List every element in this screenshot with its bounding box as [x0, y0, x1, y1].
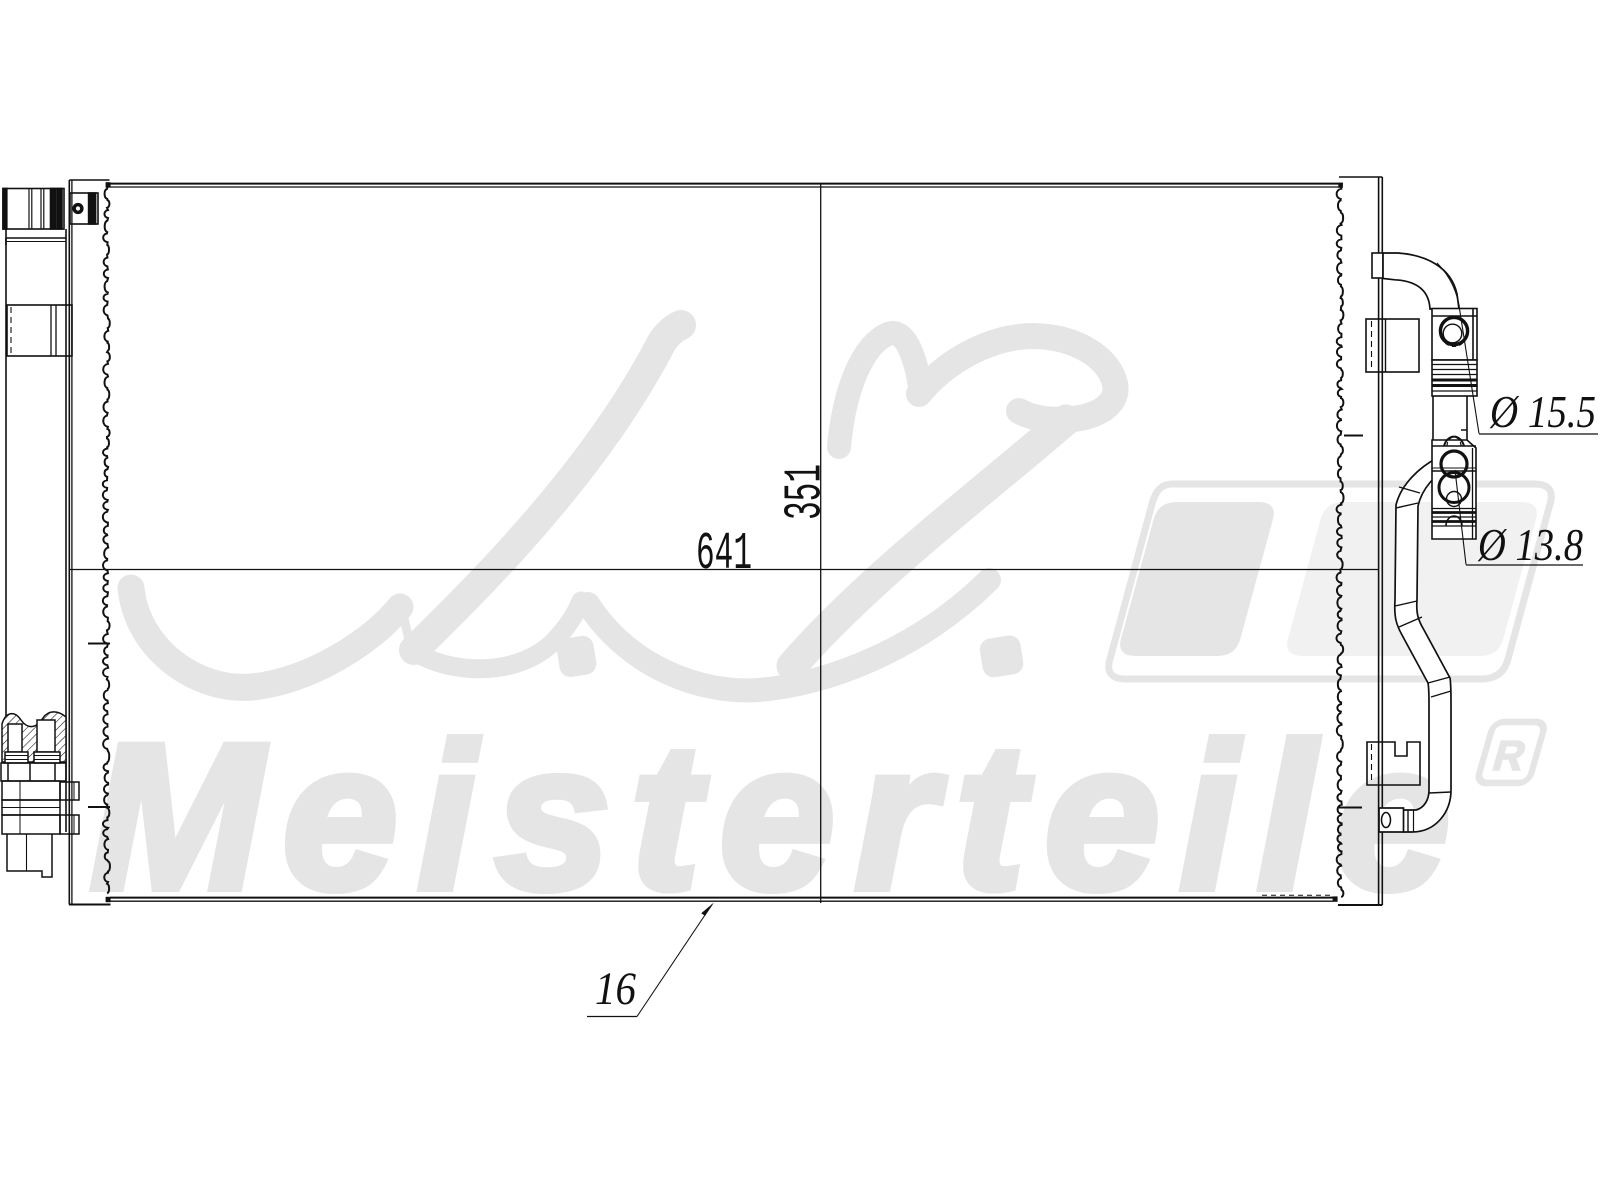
svg-text:641: 641: [696, 524, 752, 584]
svg-text:16: 16: [595, 963, 636, 1015]
svg-text:351: 351: [776, 464, 836, 520]
svg-text:Ø 13.8: Ø 13.8: [1477, 519, 1583, 570]
svg-text:Ø 15.5: Ø 15.5: [1489, 386, 1596, 437]
